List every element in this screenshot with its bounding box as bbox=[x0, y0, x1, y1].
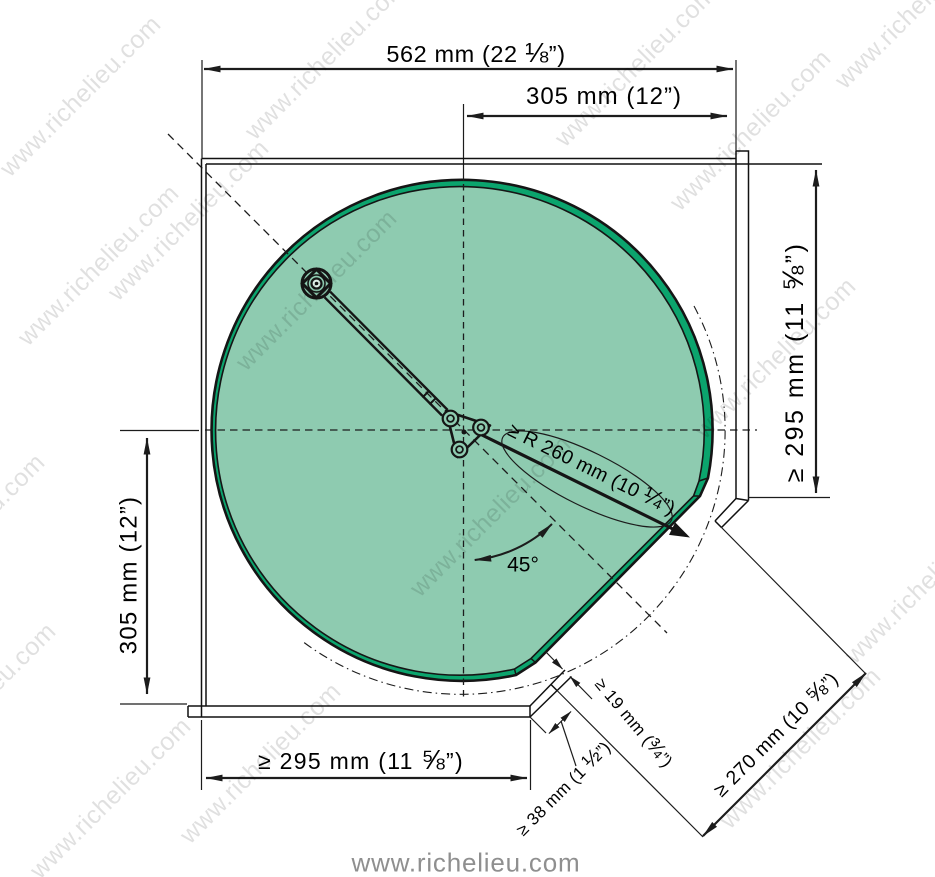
svg-text:www.richelieu.com: www.richelieu.com bbox=[351, 848, 581, 877]
svg-text:45°: 45° bbox=[507, 554, 539, 577]
svg-text:305 mm (12”): 305 mm (12”) bbox=[116, 496, 143, 654]
svg-text:562 mm (22 ⅛”): 562 mm (22 ⅛”) bbox=[386, 37, 565, 68]
